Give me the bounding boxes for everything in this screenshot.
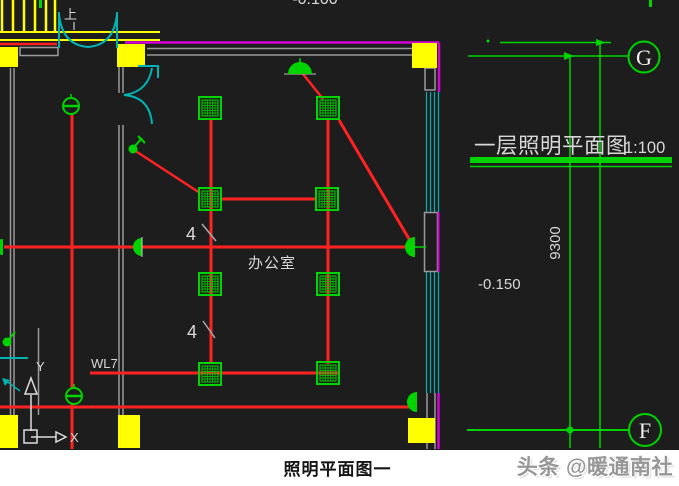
circuit-label: WL7 [91, 356, 118, 371]
ceiling-light-icon [317, 97, 339, 119]
cad-drawing-area: 一层照明平面图 1:100 -0.100 -0.150 9300 办公室 WL7… [0, 0, 679, 450]
figure-caption: 照明平面图一 [250, 455, 425, 480]
dimension-9300: 9300 [547, 226, 564, 259]
lamp-count-1: 4 [186, 224, 196, 244]
grid-axis-f-label: F [639, 418, 651, 443]
lamp-count-2: 4 [187, 322, 197, 342]
plan-title: 一层照明平面图 [474, 134, 628, 158]
ceiling-light-icon [317, 362, 339, 384]
grid-axis-g-label: G [636, 45, 652, 70]
ceiling-light-icon [199, 188, 221, 210]
elevation-top-label: -0.100 [292, 0, 337, 8]
watermark-text: 头条 @暖通南社 [517, 451, 673, 481]
screenshot-root: 一层照明平面图 1:100 -0.100 -0.150 9300 办公室 WL7… [0, 0, 679, 486]
stair-up-label: 上 [64, 7, 77, 22]
room-label: 办公室 [248, 255, 296, 272]
ceiling-light-icon [317, 273, 339, 295]
ceiling-light-icon [199, 273, 221, 295]
elevation-mid-label: -0.150 [478, 276, 521, 293]
ceiling-light-icon [199, 363, 221, 385]
ucs-x-label: X [70, 430, 79, 445]
ucs-y-label: Y [36, 359, 45, 374]
plan-scale: 1:100 [624, 139, 665, 157]
ceiling-light-icon [199, 97, 221, 119]
ceiling-light-icon [316, 188, 338, 210]
